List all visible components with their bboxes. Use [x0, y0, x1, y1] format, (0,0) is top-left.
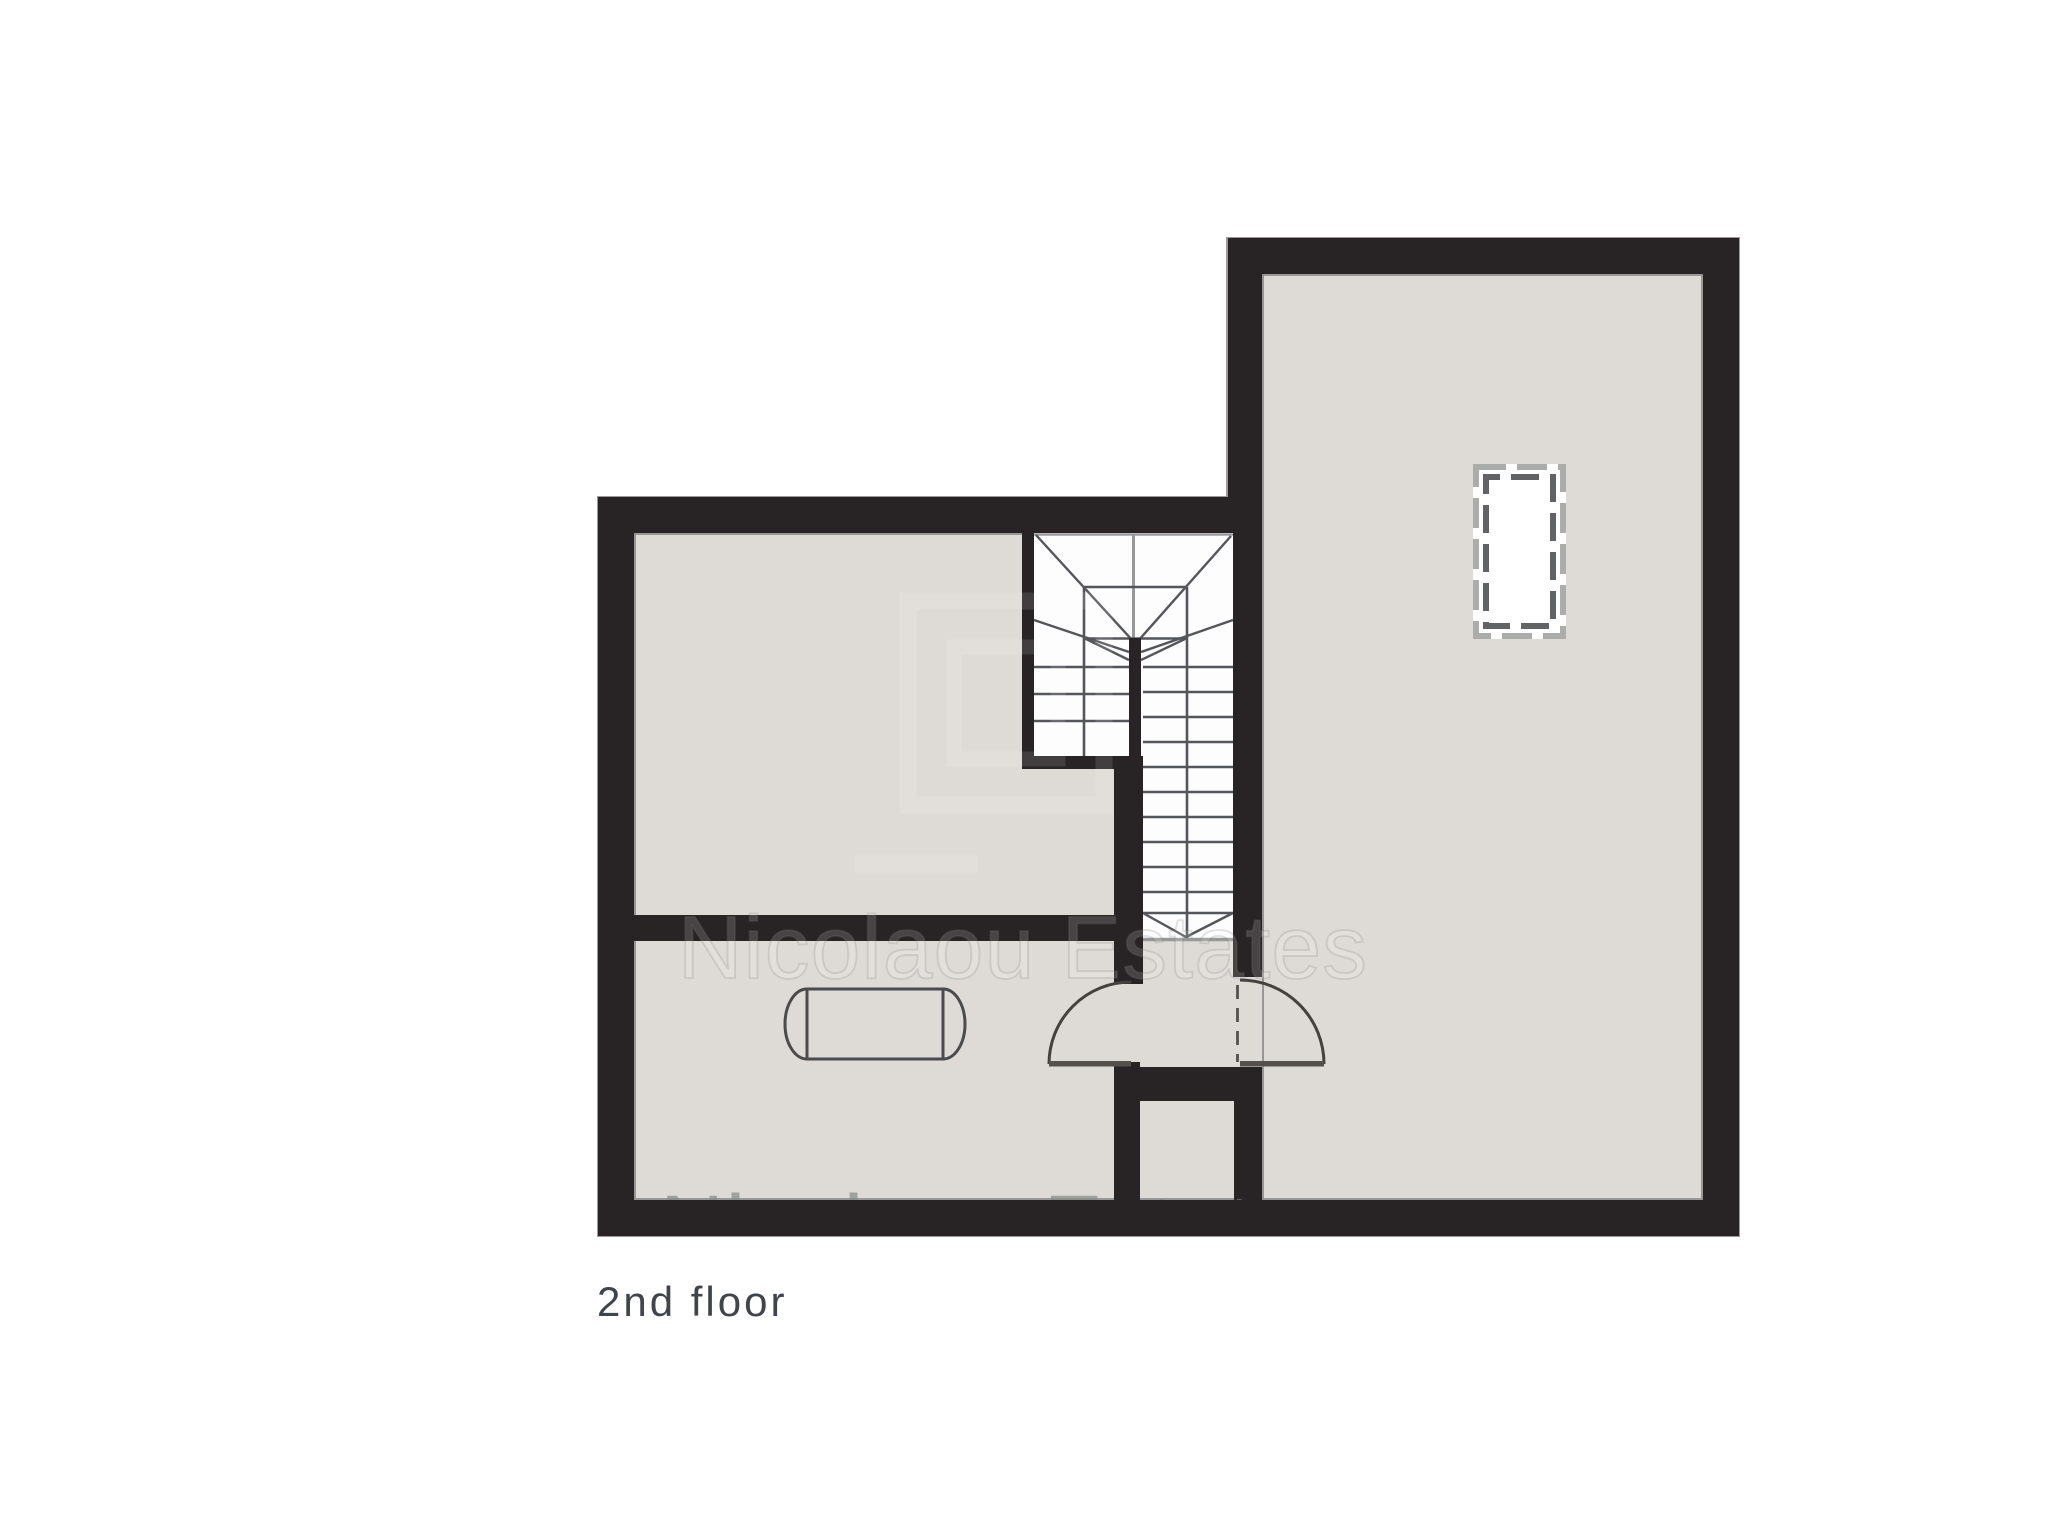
svg-text:2nd floor: 2nd floor: [597, 1278, 787, 1325]
svg-text:Nicolaou Estates: Nicolaou Estates: [678, 897, 1368, 997]
